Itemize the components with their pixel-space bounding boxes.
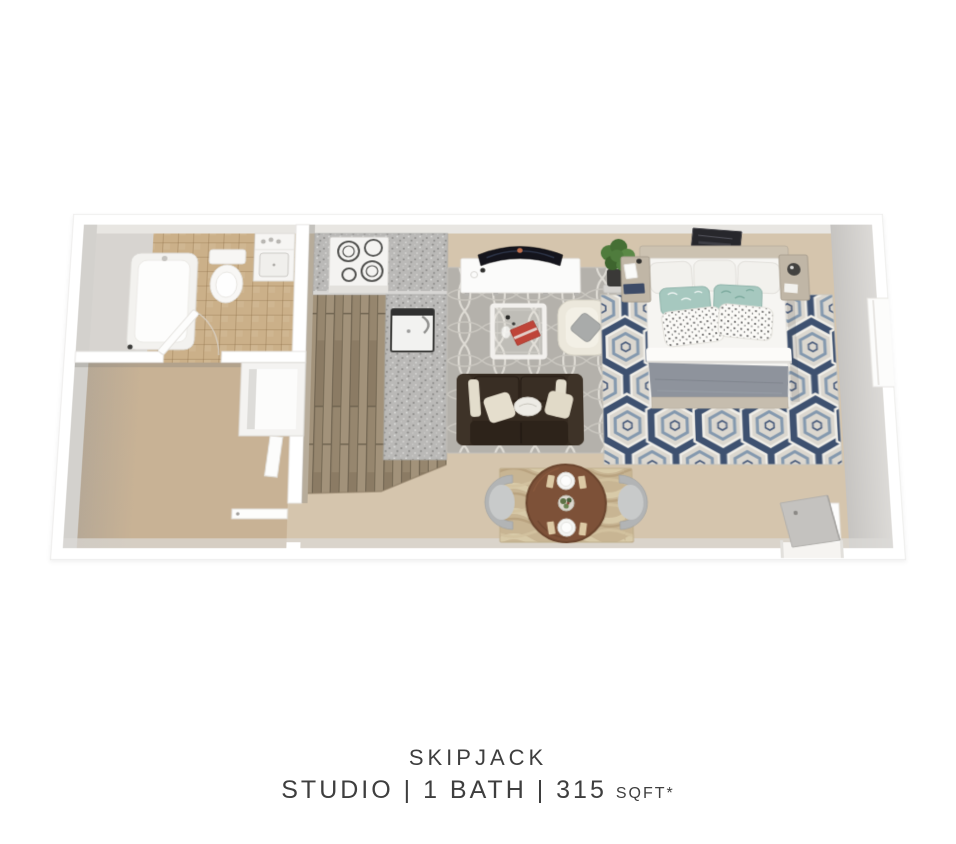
- kitchen-sink: [391, 309, 434, 351]
- console-leg-2: [493, 293, 498, 296]
- nightstand-left-notepad: [624, 263, 638, 279]
- bathroom-wall-left-seg: [75, 351, 164, 362]
- console-decor-cup: [471, 272, 478, 278]
- nightstand-left: [621, 257, 651, 302]
- bathroom-wall-right-seg: [221, 351, 306, 362]
- bathtub: [126, 253, 198, 349]
- pillow-polka-right: [718, 303, 774, 341]
- floor-plan-image: [50, 214, 906, 560]
- sofa-backrest: [470, 421, 568, 446]
- nightstand-right-item: [784, 283, 798, 293]
- toilet-tank: [209, 250, 246, 264]
- chair-left-seat: [489, 485, 515, 520]
- sheet-fold-shadow: [647, 361, 792, 364]
- sheet-fold: [646, 348, 792, 363]
- bed: [640, 246, 797, 408]
- floor-plan-svg: [50, 214, 906, 560]
- range-stove: [329, 237, 389, 293]
- nightstand-right: [779, 255, 810, 300]
- plate-top-inner: [560, 476, 571, 487]
- console-decor-item: [480, 268, 485, 273]
- sofa-pillow-round: [514, 397, 541, 416]
- table-decor-2: [512, 322, 515, 325]
- pillow-polka-left: [661, 306, 726, 348]
- interior-wall-stub: [286, 542, 300, 548]
- sink-back-ledge: [391, 309, 433, 315]
- console-leg-4: [574, 293, 579, 296]
- console-leg-1: [465, 293, 470, 296]
- flex-door-panel: [232, 509, 288, 519]
- nightstand-left-top: [621, 257, 651, 302]
- tv-logo: [517, 248, 522, 253]
- stove-front: [329, 286, 389, 293]
- console-leg-3: [543, 293, 548, 296]
- plan-specs-main: STUDIO | 1 BATH | 315: [281, 776, 607, 804]
- plate-bottom-inner: [561, 522, 572, 533]
- flex-room-door: [232, 509, 288, 519]
- window: [867, 298, 898, 387]
- sofa: [456, 374, 584, 446]
- table-decor-1: [505, 315, 510, 319]
- bed-foot-frame: [651, 397, 788, 408]
- vanity-sink: [253, 234, 295, 282]
- centerpiece-bowl: [558, 495, 574, 511]
- coffee-table: [492, 306, 544, 357]
- console-top: [461, 259, 581, 293]
- table-vase: [501, 326, 511, 339]
- floor-plan-caption: SKIPJACK STUDIO | 1 BATH | 315SQFT*: [0, 744, 956, 812]
- plan-specs: STUDIO | 1 BATH | 315SQFT*: [0, 772, 956, 812]
- nightstand-left-books: [623, 283, 645, 294]
- tv-console: [461, 259, 581, 296]
- plan-name: SKIPJACK: [0, 744, 956, 772]
- plan-specs-sqft: SQFT*: [616, 785, 675, 802]
- bottom-wall-face: [63, 538, 893, 548]
- top-wall-face: [83, 225, 872, 234]
- nightstand-right-top: [779, 255, 810, 300]
